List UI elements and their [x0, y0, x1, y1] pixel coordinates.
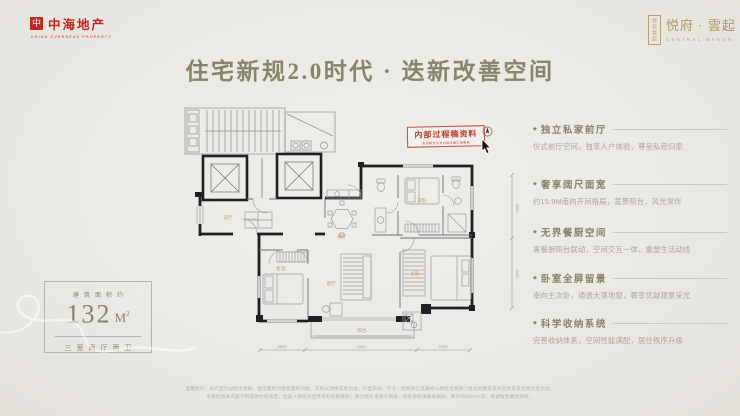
presentation-slide: 中 中海地产 CHINA OVERSEAS PROPERTY 悦府雲起 悦府 ·…	[0, 0, 740, 416]
feature-rule	[613, 184, 727, 185]
north-arrow-icon	[482, 126, 493, 137]
dim-bottom-1: 3600	[278, 344, 288, 349]
disclaimer: 温馨提示：本户型为过程示意稿，图示面积为建筑面积约数，实际以测绘成果为准；户型布…	[28, 385, 712, 401]
room-label-bedroom: 卧室	[276, 265, 286, 272]
feature-bullet-icon: ◆	[533, 229, 537, 235]
disclaimer-line-2: 本资料相关内容不构成要约或承诺，出卖人保留对宣传资料的解释权；部分图片来源于网络…	[28, 393, 712, 401]
feature-bullet-icon: ◆	[533, 181, 537, 187]
foyer-cabinet	[245, 212, 272, 228]
developer-logo: 中 中海地产 CHINA OVERSEAS PROPERTY	[30, 14, 112, 39]
wall-corner-blocks	[195, 162, 475, 322]
area-card: 建筑面积约 132M2 三室两厅两卫	[44, 281, 152, 353]
room-label-second-bedroom: 次卧	[417, 197, 427, 204]
project-name: 悦府 · 雲起	[666, 15, 736, 34]
feature-desc: 仪式前厅空间，独享入户体验，尊呈私密归家	[533, 142, 727, 152]
feature-title: 科学收纳系统	[541, 316, 607, 330]
dimension-labels: 3600 7500 2700 4500 5400	[278, 204, 520, 349]
dim-bottom-2: 7500	[357, 344, 367, 349]
feature-desc: 客餐厨阳台联动，空间交互一体，重塑生活动线	[533, 245, 727, 255]
project-logo: 悦府雲起 悦府 · 雲起 CENTRAL MANOR	[648, 15, 736, 45]
room-label-dining: 餐厅	[337, 233, 347, 240]
feature-title: 奢享阔尺面宽	[541, 177, 607, 191]
feature-item-open-kitchen: ◆ 无界餐厨空间 客餐厨阳台联动，空间交互一体，重塑生活动线	[533, 225, 727, 255]
feature-desc: 约15.9M南向开间格局，宽景阳台，风光常伴	[533, 197, 727, 207]
feature-item-wide-frontage: ◆ 奢享阔尺面宽 约15.9M南向开间格局，宽景阳台，风光常伴	[533, 177, 727, 207]
stairwell	[185, 108, 285, 154]
disclaimer-line-1: 温馨提示：本户型为过程示意稿，图示面积为建筑面积约数，实际以测绘成果为准；户型布…	[28, 385, 712, 393]
feature-item-bedroom-view: ◆ 卧室全屏留景 南向主次卧，通透大落地窗，奢享优越观景采光	[533, 271, 727, 301]
elevator-shafts	[203, 154, 321, 200]
feature-bullet-icon: ◆	[533, 275, 537, 281]
feature-bullet-icon: ◆	[533, 126, 537, 132]
project-seal-icon: 悦府雲起	[648, 15, 661, 45]
feature-rule	[613, 278, 727, 279]
bedroom-right-furniture	[405, 178, 439, 232]
feature-rule	[613, 129, 727, 130]
developer-logo-icon: 中	[30, 17, 43, 30]
feature-rule	[613, 323, 727, 324]
feature-title: 卧室全屏留景	[541, 271, 607, 285]
dim-right-2: 5400	[515, 270, 520, 280]
windows	[197, 165, 474, 323]
room-label-balcony: 阳台	[357, 327, 367, 334]
area-card-layout: 三室两厅两卫	[45, 343, 151, 353]
developer-logo-text: 中海地产	[48, 14, 106, 33]
area-number: 132	[66, 299, 111, 328]
dining-table	[328, 201, 356, 237]
page-title: 住宅新规2.0时代 · 迭新改善空间	[0, 52, 740, 86]
feature-title: 无界餐厨空间	[541, 225, 607, 239]
room-label-master-bedroom: 主卧	[410, 270, 420, 277]
feature-item-storage-system: ◆ 科学收纳系统 完善收纳体系，空间性能满配，居住秩序升级	[533, 316, 727, 346]
feature-item-front-hall: ◆ 独立私家前厅 仪式前厅空间，独享入户体验，尊呈私密归家	[533, 122, 727, 152]
dim-bottom-3: 2700	[439, 344, 449, 349]
room-label-living: 客厅	[326, 280, 336, 287]
feature-desc: 完善收纳体系，空间性能满配，居住秩序升级	[533, 336, 727, 346]
stamp-text: 内部过程稿资料	[410, 128, 482, 141]
dim-right-1: 4500	[515, 204, 520, 214]
area-card-label: 建筑面积约	[45, 290, 151, 299]
dimension-lines	[258, 173, 514, 352]
developer-logo-tagline: CHINA OVERSEAS PROPERTY	[31, 35, 112, 39]
area-unit-sup: 2	[126, 310, 130, 318]
project-name-en: CENTRAL MANOR	[666, 37, 736, 42]
feature-desc: 南向主次卧，通透大落地窗，奢享优越观景采光	[533, 291, 727, 301]
mouse-cursor	[481, 139, 495, 156]
area-card-value: 132M2	[45, 301, 151, 331]
area-unit: M	[114, 310, 126, 325]
area-card-divider	[55, 336, 141, 337]
internal-draft-stamp: 内部过程稿资料 本资料仅作为内部过程汇报使用	[407, 125, 485, 148]
room-label-foyer: 前厅	[223, 214, 233, 221]
feature-title: 独立私家前厅	[541, 122, 607, 136]
feature-bullet-icon: ◆	[533, 320, 537, 326]
stamp-note: 本资料仅作为内部过程汇报使用	[410, 140, 482, 146]
laundry-balcony	[285, 112, 335, 152]
project-seal-text: 悦府雲起	[651, 18, 658, 42]
feature-rule	[613, 232, 727, 233]
master-bedroom-furniture	[403, 250, 471, 330]
